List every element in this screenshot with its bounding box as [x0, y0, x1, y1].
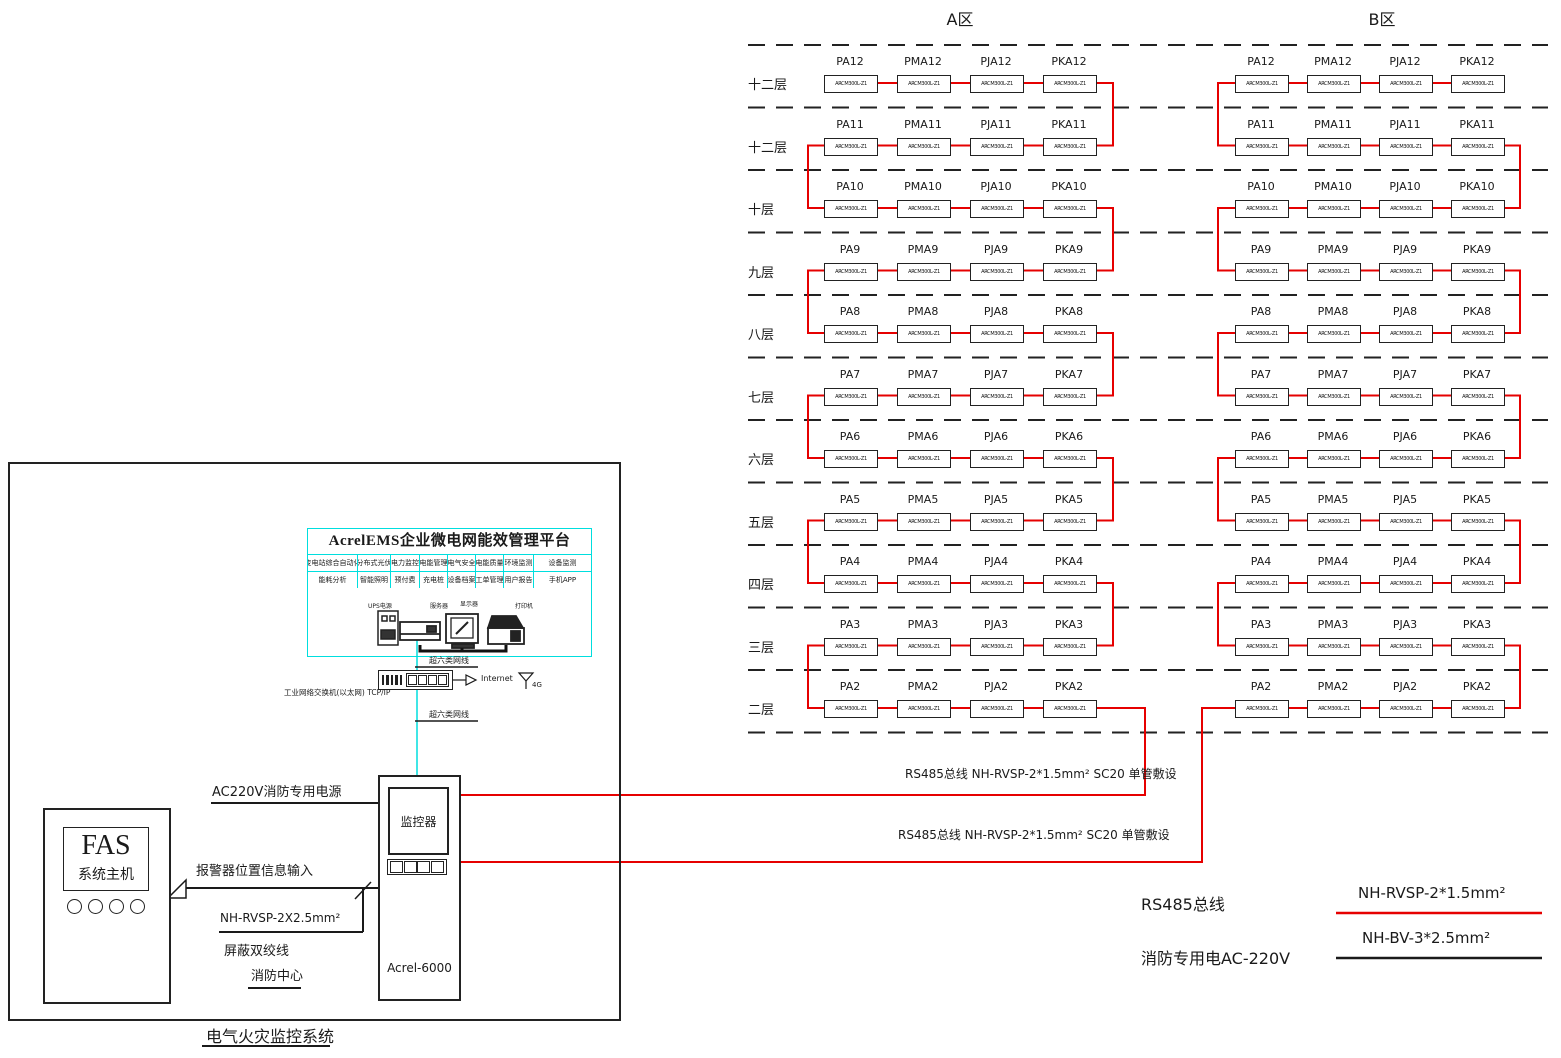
device-box: ARCM300L-Z1 — [897, 263, 951, 281]
device-box: ARCM300L-Z1 — [1043, 513, 1097, 531]
device-label: PKA2 — [1033, 680, 1105, 693]
device-label: PKA11 — [1441, 118, 1513, 131]
device-label: PMA9 — [1297, 243, 1369, 256]
diagram-canvas: AcrelEMS企业微电网能效管理平台 变电站综合自动化 分布式光伏 电力监控 … — [0, 0, 1561, 1058]
device-box: ARCM300L-Z1 — [1307, 638, 1361, 656]
device-model: ARCM300L-Z1 — [835, 206, 867, 212]
device-model: ARCM300L-Z1 — [1054, 456, 1086, 462]
device-label: PMA8 — [1297, 305, 1369, 318]
device-model: ARCM300L-Z1 — [908, 269, 940, 275]
device-box: ARCM300L-Z1 — [1379, 700, 1433, 718]
device-box: ARCM300L-Z1 — [897, 700, 951, 718]
device-model: ARCM300L-Z1 — [835, 394, 867, 400]
device-label: PJA3 — [1369, 618, 1441, 631]
device-box: ARCM300L-Z1 — [970, 575, 1024, 593]
device-box: ARCM300L-Z1 — [1451, 75, 1505, 93]
device-model: ARCM300L-Z1 — [1462, 269, 1494, 275]
device-box: ARCM300L-Z1 — [970, 700, 1024, 718]
device-box: ARCM300L-Z1 — [1307, 575, 1361, 593]
device-box: ARCM300L-Z1 — [1379, 575, 1433, 593]
wireless-4g-label: 4G — [532, 681, 542, 689]
device-label: PA5 — [1225, 493, 1297, 506]
device-model: ARCM300L-Z1 — [1462, 644, 1494, 650]
device-label: PMA7 — [1297, 368, 1369, 381]
device-label: PA11 — [814, 118, 886, 131]
device-model: ARCM300L-Z1 — [1390, 456, 1422, 462]
device-box: ARCM300L-Z1 — [1043, 388, 1097, 406]
switch-port — [395, 675, 397, 685]
acrel-ems-platform-box: AcrelEMS企业微电网能效管理平台 变电站综合自动化 分布式光伏 电力监控 … — [307, 528, 592, 657]
device-label: PJA7 — [960, 368, 1032, 381]
device-box: ARCM300L-Z1 — [970, 200, 1024, 218]
device-model: ARCM300L-Z1 — [1462, 81, 1494, 87]
ups-label: UPS电源 — [368, 601, 392, 610]
floor-label: 八层 — [748, 324, 774, 343]
device-label: PMA11 — [887, 118, 959, 131]
device-label: PMA9 — [887, 243, 959, 256]
device-model: ARCM300L-Z1 — [1246, 394, 1278, 400]
device-box: ARCM300L-Z1 — [1307, 513, 1361, 531]
device-model: ARCM300L-Z1 — [1390, 644, 1422, 650]
device-label: PMA5 — [887, 493, 959, 506]
device-label: PA4 — [814, 555, 886, 568]
device-label: PA3 — [1225, 618, 1297, 631]
device-model: ARCM300L-Z1 — [908, 331, 940, 337]
device-model: ARCM300L-Z1 — [1390, 206, 1422, 212]
floor-label: 五层 — [748, 512, 774, 531]
device-model: ARCM300L-Z1 — [835, 81, 867, 87]
device-model: ARCM300L-Z1 — [1318, 581, 1350, 587]
alarm-input-label: 报警器位置信息输入 — [196, 860, 313, 879]
device-label: PKA8 — [1441, 305, 1513, 318]
device-label: PKA9 — [1441, 243, 1513, 256]
device-model: ARCM300L-Z1 — [1054, 519, 1086, 525]
device-box: ARCM300L-Z1 — [1379, 325, 1433, 343]
device-label: PKA3 — [1033, 618, 1105, 631]
device-label: PJA5 — [960, 493, 1032, 506]
device-box: ARCM300L-Z1 — [897, 575, 951, 593]
device-model: ARCM300L-Z1 — [981, 706, 1013, 712]
device-model: ARCM300L-Z1 — [835, 269, 867, 275]
device-box: ARCM300L-Z1 — [1307, 450, 1361, 468]
device-label: PJA7 — [1369, 368, 1441, 381]
device-model: ARCM300L-Z1 — [1390, 144, 1422, 150]
device-model: ARCM300L-Z1 — [1318, 206, 1350, 212]
device-box: ARCM300L-Z1 — [824, 575, 878, 593]
device-model: ARCM300L-Z1 — [908, 519, 940, 525]
device-box: ARCM300L-Z1 — [970, 388, 1024, 406]
device-box: ARCM300L-Z1 — [824, 263, 878, 281]
device-model: ARCM300L-Z1 — [1318, 644, 1350, 650]
switch-port — [438, 675, 447, 685]
device-label: PMA3 — [887, 618, 959, 631]
switch-port — [386, 675, 388, 685]
cat6-cable-label-bottom: 超六类网线 — [429, 709, 469, 720]
feature-cell: 能耗分析 — [308, 572, 358, 588]
device-box: ARCM300L-Z1 — [897, 513, 951, 531]
device-model: ARCM300L-Z1 — [1054, 581, 1086, 587]
device-label: PJA2 — [960, 680, 1032, 693]
device-model: ARCM300L-Z1 — [981, 394, 1013, 400]
floor-label: 六层 — [748, 449, 774, 468]
ac-power-label: AC220V消防专用电源 — [212, 781, 341, 800]
device-box: ARCM300L-Z1 — [824, 513, 878, 531]
device-box: ARCM300L-Z1 — [1043, 450, 1097, 468]
device-label: PMA6 — [887, 430, 959, 443]
device-model: ARCM300L-Z1 — [1462, 456, 1494, 462]
device-model: ARCM300L-Z1 — [1462, 206, 1494, 212]
device-label: PJA6 — [1369, 430, 1441, 443]
device-label: PA8 — [1225, 305, 1297, 318]
cabinet-button — [404, 861, 417, 873]
device-label: PJA4 — [960, 555, 1032, 568]
device-model: ARCM300L-Z1 — [1462, 581, 1494, 587]
device-model: ARCM300L-Z1 — [1246, 206, 1278, 212]
device-box: ARCM300L-Z1 — [1307, 75, 1361, 93]
floor-label: 十层 — [748, 199, 774, 218]
device-box: ARCM300L-Z1 — [1451, 700, 1505, 718]
device-label: PJA10 — [960, 180, 1032, 193]
device-model: ARCM300L-Z1 — [981, 644, 1013, 650]
fas-indicator — [130, 899, 145, 914]
device-box: ARCM300L-Z1 — [970, 513, 1024, 531]
printer-label: 打印机 — [515, 601, 533, 610]
switch-port — [418, 675, 427, 685]
device-model: ARCM300L-Z1 — [1246, 581, 1278, 587]
device-model: ARCM300L-Z1 — [1318, 144, 1350, 150]
device-model: ARCM300L-Z1 — [1054, 269, 1086, 275]
device-model: ARCM300L-Z1 — [1390, 81, 1422, 87]
device-box: ARCM300L-Z1 — [1235, 138, 1289, 156]
device-box: ARCM300L-Z1 — [1451, 325, 1505, 343]
device-box: ARCM300L-Z1 — [897, 325, 951, 343]
legend-fire-power-label: 消防专用电AC-220V — [1141, 945, 1290, 969]
device-model: ARCM300L-Z1 — [981, 331, 1013, 337]
device-box: ARCM300L-Z1 — [1451, 450, 1505, 468]
device-label: PMA3 — [1297, 618, 1369, 631]
device-model: ARCM300L-Z1 — [1390, 331, 1422, 337]
device-label: PKA6 — [1033, 430, 1105, 443]
device-model: ARCM300L-Z1 — [908, 581, 940, 587]
device-model: ARCM300L-Z1 — [1246, 144, 1278, 150]
feature-cell: 电气安全 — [448, 555, 476, 571]
device-label: PA3 — [814, 618, 886, 631]
device-box: ARCM300L-Z1 — [1451, 388, 1505, 406]
device-model: ARCM300L-Z1 — [835, 331, 867, 337]
feature-cell: 电能质量 — [476, 555, 504, 571]
device-box: ARCM300L-Z1 — [970, 75, 1024, 93]
device-model: ARCM300L-Z1 — [1390, 394, 1422, 400]
device-box: ARCM300L-Z1 — [1235, 513, 1289, 531]
cabinet-button — [417, 861, 430, 873]
device-box: ARCM300L-Z1 — [1235, 575, 1289, 593]
floor-label: 七层 — [748, 387, 774, 406]
fas-title: FAS — [64, 828, 148, 864]
device-label: PMA4 — [887, 555, 959, 568]
switch-port — [391, 675, 393, 685]
device-label: PMA10 — [887, 180, 959, 193]
device-box: ARCM300L-Z1 — [1379, 200, 1433, 218]
fas-host-box: FAS 系统主机 — [43, 808, 171, 1004]
shielded-pair-label: 屏蔽双绞线 — [224, 940, 289, 959]
device-model: ARCM300L-Z1 — [1054, 331, 1086, 337]
device-model: ARCM300L-Z1 — [908, 144, 940, 150]
device-label: PKA9 — [1033, 243, 1105, 256]
platform-feature-row-1: 变电站综合自动化 分布式光伏 电力监控 电能管理 电气安全 电能质量 环境监测 … — [308, 555, 591, 572]
device-label: PMA12 — [1297, 55, 1369, 68]
device-box: ARCM300L-Z1 — [1451, 200, 1505, 218]
device-box: ARCM300L-Z1 — [1307, 263, 1361, 281]
device-model: ARCM300L-Z1 — [1390, 519, 1422, 525]
device-model: ARCM300L-Z1 — [835, 644, 867, 650]
device-box: ARCM300L-Z1 — [897, 75, 951, 93]
legend-black-wire-label: NH-BV-3*2.5mm² — [1362, 929, 1490, 947]
device-box: ARCM300L-Z1 — [1235, 638, 1289, 656]
device-box: ARCM300L-Z1 — [897, 450, 951, 468]
device-label: PA12 — [1225, 55, 1297, 68]
device-box: ARCM300L-Z1 — [824, 200, 878, 218]
rs485-run-label-1: RS485总线 NH-RVSP-2*1.5mm² SC20 单管敷设 — [905, 765, 1155, 782]
device-box: ARCM300L-Z1 — [1043, 638, 1097, 656]
device-model: ARCM300L-Z1 — [1054, 144, 1086, 150]
device-label: PJA5 — [1369, 493, 1441, 506]
device-box: ARCM300L-Z1 — [1307, 138, 1361, 156]
device-box: ARCM300L-Z1 — [824, 325, 878, 343]
device-box: ARCM300L-Z1 — [824, 138, 878, 156]
device-box: ARCM300L-Z1 — [1379, 450, 1433, 468]
floor-label: 二层 — [748, 699, 774, 718]
device-label: PJA11 — [960, 118, 1032, 131]
device-model: ARCM300L-Z1 — [908, 394, 940, 400]
device-label: PKA10 — [1441, 180, 1513, 193]
device-label: PJA11 — [1369, 118, 1441, 131]
feature-cell: 预付费 — [391, 572, 420, 588]
device-box: ARCM300L-Z1 — [1235, 75, 1289, 93]
device-model: ARCM300L-Z1 — [1246, 81, 1278, 87]
device-box: ARCM300L-Z1 — [1379, 263, 1433, 281]
device-box: ARCM300L-Z1 — [1451, 138, 1505, 156]
device-model: ARCM300L-Z1 — [1462, 144, 1494, 150]
device-model: ARCM300L-Z1 — [1246, 644, 1278, 650]
device-label: PMA10 — [1297, 180, 1369, 193]
device-model: ARCM300L-Z1 — [1318, 269, 1350, 275]
device-label: PKA12 — [1033, 55, 1105, 68]
device-label: PA6 — [814, 430, 886, 443]
device-box: ARCM300L-Z1 — [1043, 75, 1097, 93]
device-model: ARCM300L-Z1 — [1246, 331, 1278, 337]
device-model: ARCM300L-Z1 — [1462, 519, 1494, 525]
fire-center-label: 消防中心 — [251, 965, 303, 984]
device-label: PJA4 — [1369, 555, 1441, 568]
device-box: ARCM300L-Z1 — [1307, 700, 1361, 718]
device-model: ARCM300L-Z1 — [835, 144, 867, 150]
device-box: ARCM300L-Z1 — [1451, 513, 1505, 531]
device-model: ARCM300L-Z1 — [1462, 394, 1494, 400]
system-title: 电气火灾监控系统 — [206, 1023, 334, 1047]
fas-subtitle: 系统主机 — [64, 864, 148, 884]
device-label: PA9 — [1225, 243, 1297, 256]
platform-title: AcrelEMS企业微电网能效管理平台 — [308, 529, 591, 555]
device-label: PMA5 — [1297, 493, 1369, 506]
device-label: PKA7 — [1441, 368, 1513, 381]
device-model: ARCM300L-Z1 — [981, 144, 1013, 150]
cabinet-button — [390, 861, 403, 873]
device-model: ARCM300L-Z1 — [1054, 206, 1086, 212]
device-label: PJA12 — [960, 55, 1032, 68]
acrel-6000-cabinet: 监控器 Acrel-6000 — [378, 775, 461, 1001]
device-model: ARCM300L-Z1 — [1390, 269, 1422, 275]
switch-port — [428, 675, 437, 685]
feature-cell: 电能管理 — [420, 555, 448, 571]
cat6-cable-label-top: 超六类网线 — [429, 655, 469, 666]
zone-b-header: B区 — [1352, 6, 1412, 30]
device-box: ARCM300L-Z1 — [897, 638, 951, 656]
device-model: ARCM300L-Z1 — [1054, 394, 1086, 400]
device-label: PKA7 — [1033, 368, 1105, 381]
device-box: ARCM300L-Z1 — [970, 138, 1024, 156]
device-label: PKA4 — [1441, 555, 1513, 568]
feature-cell: 用户报告 — [504, 572, 534, 588]
device-box: ARCM300L-Z1 — [897, 138, 951, 156]
device-box: ARCM300L-Z1 — [970, 325, 1024, 343]
device-label: PA9 — [814, 243, 886, 256]
device-box: ARCM300L-Z1 — [1379, 638, 1433, 656]
device-model: ARCM300L-Z1 — [1318, 456, 1350, 462]
device-box: ARCM300L-Z1 — [1379, 513, 1433, 531]
internet-label: Internet — [481, 674, 513, 683]
device-box: ARCM300L-Z1 — [1235, 200, 1289, 218]
device-model: ARCM300L-Z1 — [1318, 706, 1350, 712]
device-label: PMA4 — [1297, 555, 1369, 568]
device-model: ARCM300L-Z1 — [1246, 456, 1278, 462]
device-box: ARCM300L-Z1 — [970, 263, 1024, 281]
device-label: PJA9 — [960, 243, 1032, 256]
device-box: ARCM300L-Z1 — [1451, 263, 1505, 281]
device-box: ARCM300L-Z1 — [1043, 575, 1097, 593]
device-label: PJA6 — [960, 430, 1032, 443]
device-model: ARCM300L-Z1 — [1462, 706, 1494, 712]
device-box: ARCM300L-Z1 — [824, 700, 878, 718]
device-model: ARCM300L-Z1 — [1054, 81, 1086, 87]
device-label: PKA12 — [1441, 55, 1513, 68]
cabinet-button-strip — [387, 859, 447, 875]
device-label: PJA9 — [1369, 243, 1441, 256]
switch-port — [408, 675, 417, 685]
floor-label: 三层 — [748, 637, 774, 656]
device-model: ARCM300L-Z1 — [1246, 519, 1278, 525]
switch-label: 工业网络交换机(以太网) TCP/IP — [284, 687, 390, 698]
device-label: PMA12 — [887, 55, 959, 68]
feature-cell: 环境监测 — [504, 555, 534, 571]
platform-feature-row-2: 能耗分析 智能照明 预付费 充电桩 设备档案 工单管理 用户报告 手机APP — [308, 572, 591, 588]
device-label: PJA2 — [1369, 680, 1441, 693]
device-model: ARCM300L-Z1 — [1318, 519, 1350, 525]
device-box: ARCM300L-Z1 — [1379, 138, 1433, 156]
device-model: ARCM300L-Z1 — [908, 456, 940, 462]
device-label: PA5 — [814, 493, 886, 506]
feature-cell: 分布式光伏 — [358, 555, 391, 571]
device-model: ARCM300L-Z1 — [908, 644, 940, 650]
device-model: ARCM300L-Z1 — [908, 81, 940, 87]
device-model: ARCM300L-Z1 — [1318, 81, 1350, 87]
device-label: PMA7 — [887, 368, 959, 381]
device-box: ARCM300L-Z1 — [1379, 75, 1433, 93]
device-model: ARCM300L-Z1 — [1054, 644, 1086, 650]
device-box: ARCM300L-Z1 — [824, 450, 878, 468]
device-model: ARCM300L-Z1 — [981, 519, 1013, 525]
device-box: ARCM300L-Z1 — [1307, 325, 1361, 343]
device-label: PA2 — [814, 680, 886, 693]
device-label: PA11 — [1225, 118, 1297, 131]
device-model: ARCM300L-Z1 — [1054, 706, 1086, 712]
device-model: ARCM300L-Z1 — [835, 706, 867, 712]
device-label: PJA12 — [1369, 55, 1441, 68]
device-box: ARCM300L-Z1 — [1043, 138, 1097, 156]
device-label: PJA8 — [960, 305, 1032, 318]
device-label: PMA6 — [1297, 430, 1369, 443]
floor-label: 九层 — [748, 262, 774, 281]
floor-label: 十二层 — [748, 74, 787, 93]
device-model: ARCM300L-Z1 — [835, 519, 867, 525]
feature-cell: 设备监测 — [534, 555, 591, 571]
device-label: PKA5 — [1441, 493, 1513, 506]
device-label: PKA8 — [1033, 305, 1105, 318]
device-box: ARCM300L-Z1 — [1043, 200, 1097, 218]
fas-indicator — [88, 899, 103, 914]
device-label: PMA2 — [887, 680, 959, 693]
zone-a-header: A区 — [930, 6, 990, 30]
device-box: ARCM300L-Z1 — [1235, 263, 1289, 281]
device-model: ARCM300L-Z1 — [981, 581, 1013, 587]
device-box: ARCM300L-Z1 — [1451, 638, 1505, 656]
device-label: PJA8 — [1369, 305, 1441, 318]
device-label: PA12 — [814, 55, 886, 68]
device-model: ARCM300L-Z1 — [1318, 331, 1350, 337]
device-label: PKA11 — [1033, 118, 1105, 131]
device-box: ARCM300L-Z1 — [897, 388, 951, 406]
device-label: PMA11 — [1297, 118, 1369, 131]
device-model: ARCM300L-Z1 — [1390, 706, 1422, 712]
cable-spec-label: NH-RVSP-2X2.5mm² — [220, 911, 340, 925]
cabinet-button — [431, 861, 444, 873]
device-label: PKA5 — [1033, 493, 1105, 506]
device-box: ARCM300L-Z1 — [897, 200, 951, 218]
device-model: ARCM300L-Z1 — [1246, 269, 1278, 275]
feature-cell: 工单管理 — [476, 572, 504, 588]
device-label: PA2 — [1225, 680, 1297, 693]
device-box: ARCM300L-Z1 — [970, 450, 1024, 468]
device-box: ARCM300L-Z1 — [1307, 200, 1361, 218]
switch-port — [400, 675, 402, 685]
cabinet-model-label: Acrel-6000 — [380, 961, 459, 975]
fas-inner-box: FAS 系统主机 — [63, 827, 149, 891]
device-label: PA8 — [814, 305, 886, 318]
device-label: PKA6 — [1441, 430, 1513, 443]
device-box: ARCM300L-Z1 — [1043, 263, 1097, 281]
device-model: ARCM300L-Z1 — [1390, 581, 1422, 587]
device-box: ARCM300L-Z1 — [1235, 450, 1289, 468]
feature-cell: 变电站综合自动化 — [308, 555, 358, 571]
device-box: ARCM300L-Z1 — [1235, 388, 1289, 406]
device-box: ARCM300L-Z1 — [1235, 700, 1289, 718]
device-label: PKA4 — [1033, 555, 1105, 568]
legend-red-wire-label: NH-RVSP-2*1.5mm² — [1358, 884, 1506, 902]
switch-port — [382, 675, 384, 685]
device-model: ARCM300L-Z1 — [1462, 331, 1494, 337]
switch-port-group — [406, 673, 449, 687]
device-model: ARCM300L-Z1 — [981, 206, 1013, 212]
device-model: ARCM300L-Z1 — [835, 456, 867, 462]
